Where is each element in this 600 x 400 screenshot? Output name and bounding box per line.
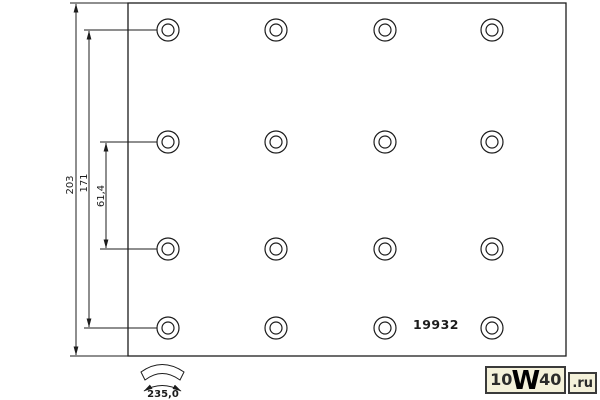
rivet-hole: [270, 243, 282, 255]
rivet-holes: [157, 19, 503, 339]
rivet-hole: [481, 238, 503, 260]
rivet-hole: [486, 243, 498, 255]
watermark-logo: 10 W 40 .ru: [485, 366, 597, 394]
rivet-hole: [270, 136, 282, 148]
rivet-hole: [486, 322, 498, 334]
rivet-hole: [157, 238, 179, 260]
rivet-hole: [379, 136, 391, 148]
rivet-hole: [481, 317, 503, 339]
lining-outline: [128, 3, 566, 356]
dim-label-hole-row-gap: 61,4: [96, 185, 107, 207]
rivet-hole: [162, 24, 174, 36]
rivet-hole: [162, 243, 174, 255]
dim-label-hole-span: 171: [79, 173, 90, 192]
dim-label-total-height: 203: [65, 175, 76, 194]
rivet-hole: [481, 131, 503, 153]
rivet-hole: [374, 238, 396, 260]
watermark-main-box: 10 W 40: [485, 366, 566, 394]
watermark-ru-box: .ru: [568, 372, 597, 394]
rivet-hole: [265, 317, 287, 339]
rivet-hole: [265, 19, 287, 41]
rivet-hole: [379, 322, 391, 334]
watermark-text-40: 40: [539, 372, 561, 388]
rivet-hole: [162, 136, 174, 148]
part-number: 19932: [413, 317, 459, 332]
rivet-hole: [270, 24, 282, 36]
rivet-hole: [157, 317, 179, 339]
rivet-hole: [374, 317, 396, 339]
rivet-hole: [481, 19, 503, 41]
rivet-hole: [157, 19, 179, 41]
rivet-hole: [265, 131, 287, 153]
dim-label-arc-width: 235,0: [147, 389, 179, 400]
rivet-hole: [379, 24, 391, 36]
technical-drawing: 203 171 61,4 19932 235,0: [0, 0, 600, 400]
watermark-text-10: 10: [490, 372, 512, 388]
rivet-hole: [162, 322, 174, 334]
rivet-hole: [486, 136, 498, 148]
rivet-hole: [157, 131, 179, 153]
drawing-canvas: 203 171 61,4 19932 235,0 10 W 40 .ru: [0, 0, 600, 400]
rivet-hole: [379, 243, 391, 255]
watermark-text-w: W: [511, 370, 540, 392]
arc-section-symbol: [141, 365, 184, 381]
rivet-hole: [265, 238, 287, 260]
rivet-hole: [374, 19, 396, 41]
rivet-hole: [486, 24, 498, 36]
rivet-hole: [270, 322, 282, 334]
rivet-hole: [374, 131, 396, 153]
